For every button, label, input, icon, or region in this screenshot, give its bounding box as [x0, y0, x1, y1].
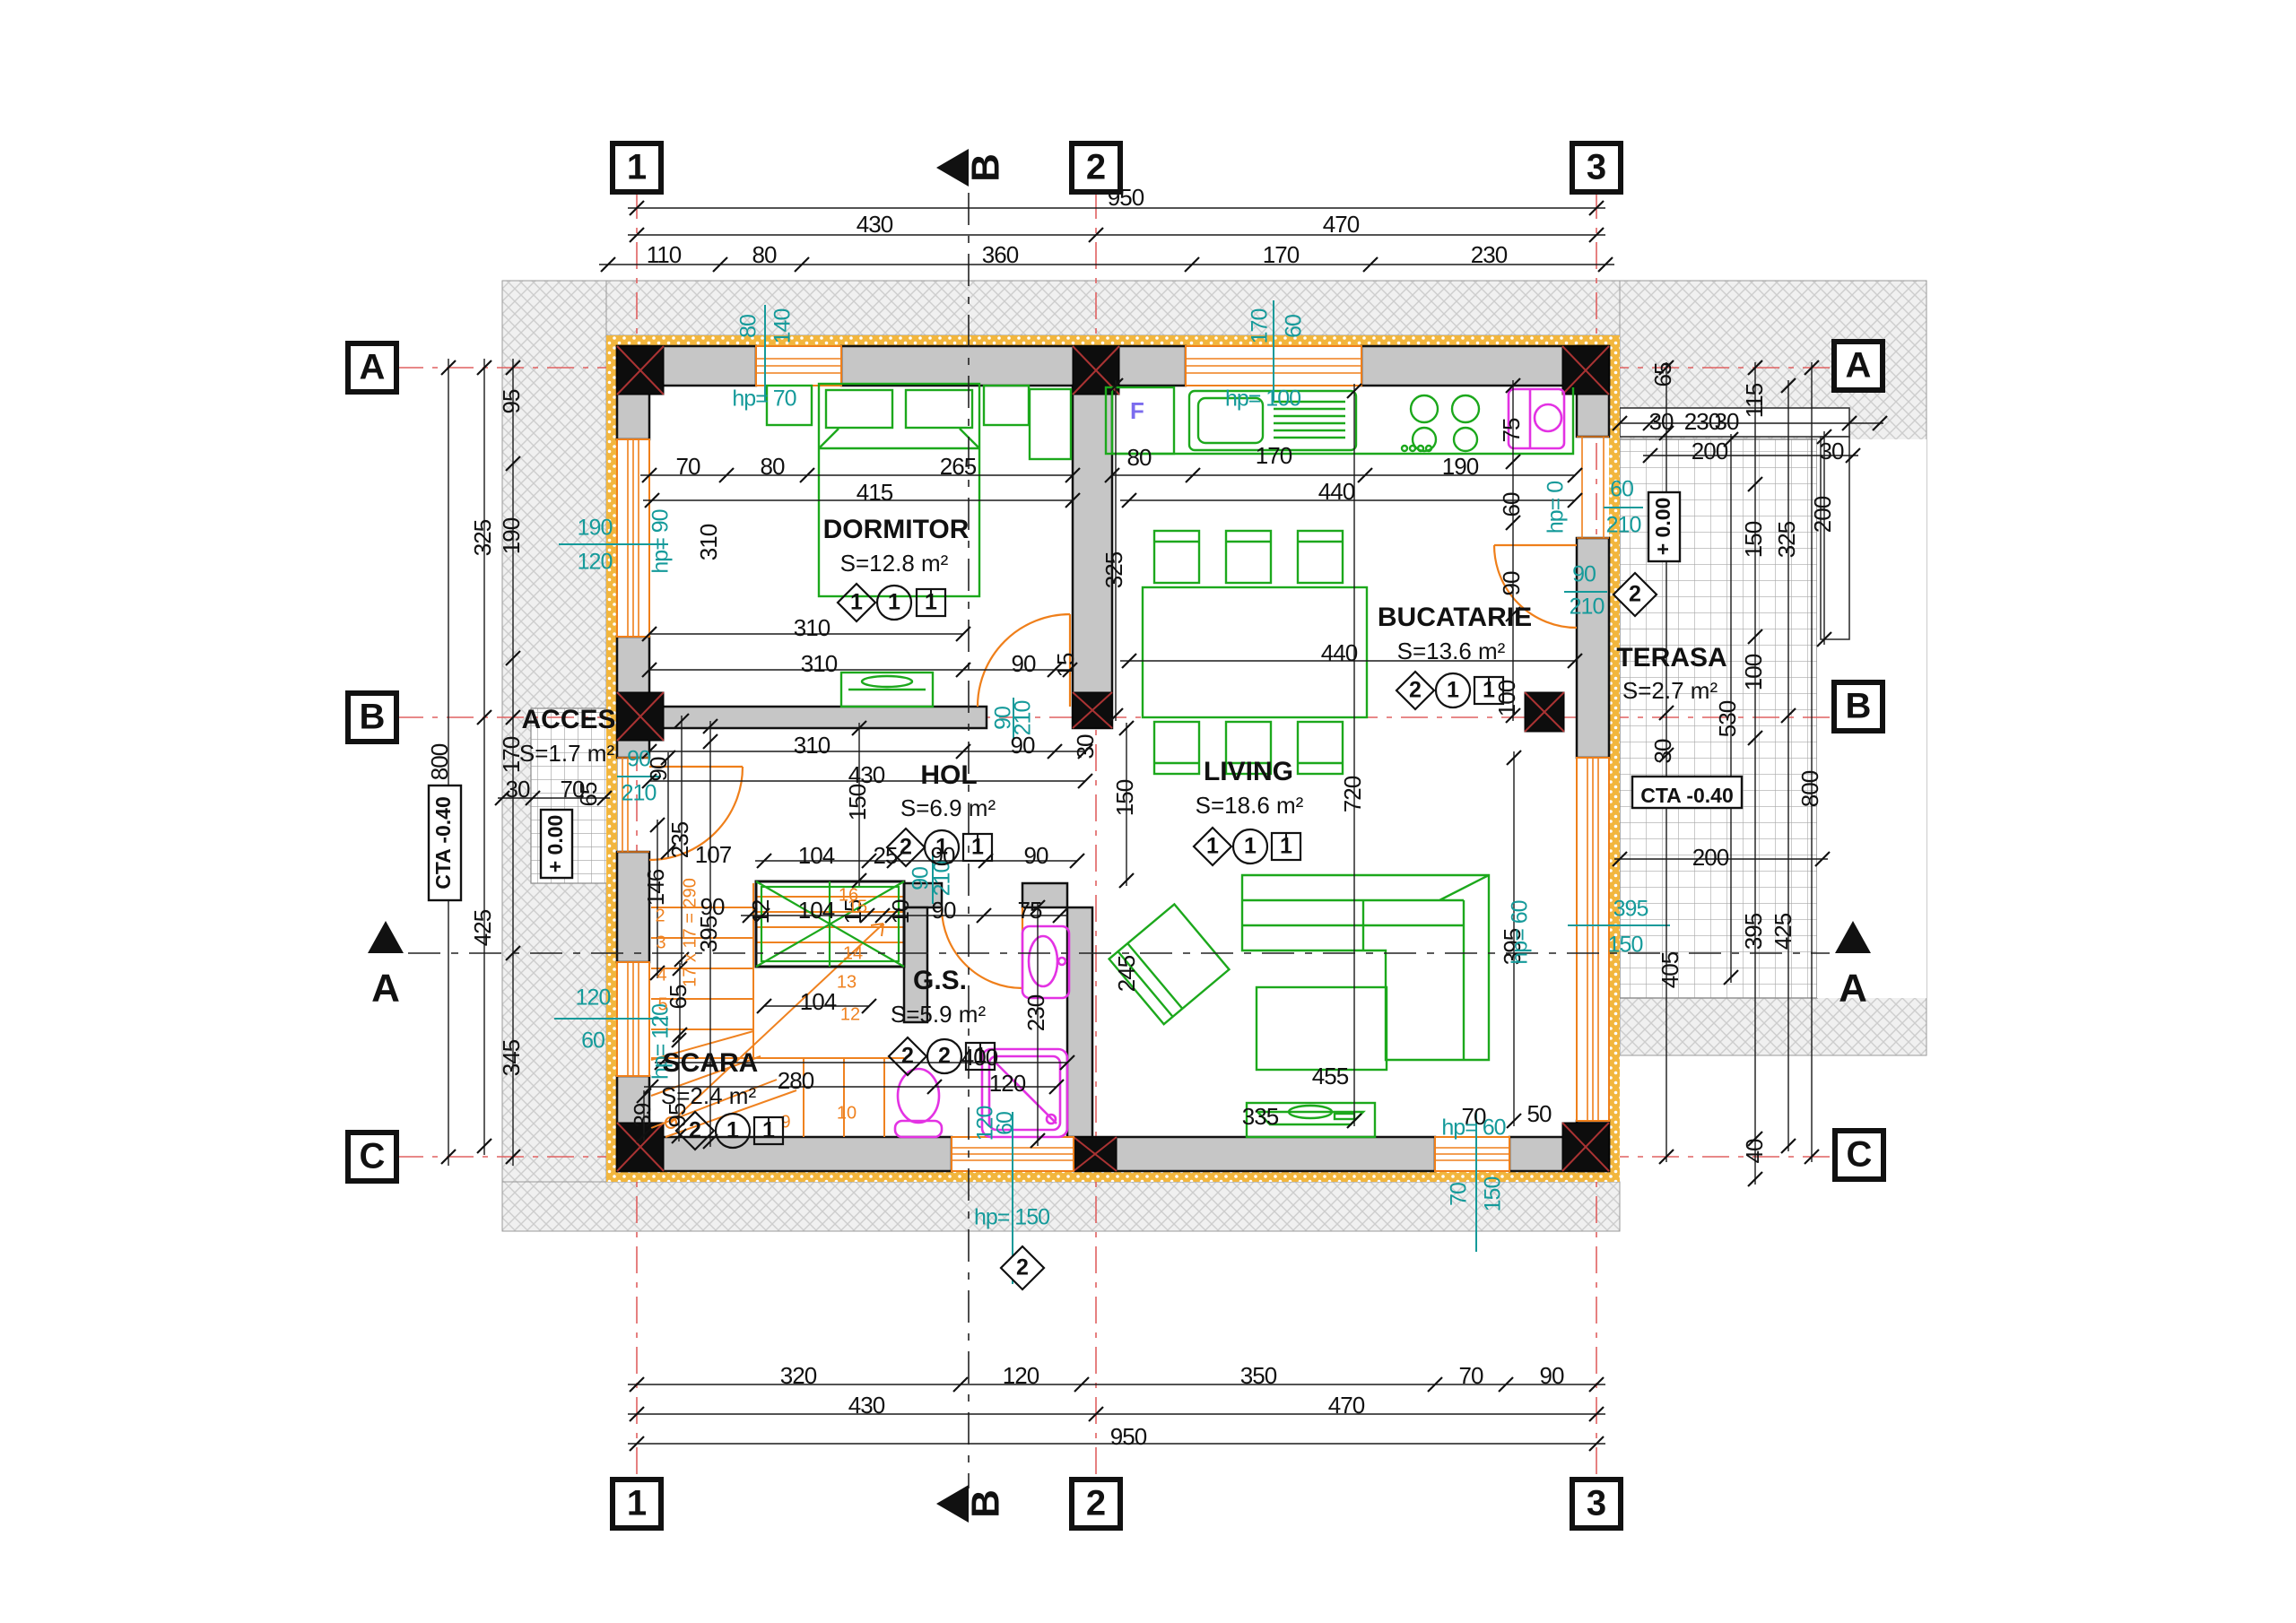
finish-symbol-value: 2 [900, 835, 912, 860]
dim-label: 720 [1339, 776, 1366, 812]
dim-label: 415 [857, 479, 893, 506]
section-b-label: B [964, 153, 1008, 182]
dim-label: 280 [778, 1067, 814, 1094]
stair-label: 5 [657, 994, 667, 1014]
dim-label: 30 [1649, 739, 1676, 763]
section-a-arrow-icon [368, 921, 404, 953]
room-area: S=5.9 m² [891, 1001, 987, 1028]
window-dormitor-top [756, 346, 841, 386]
section-b-label: B [964, 1489, 1008, 1518]
room-area: S=13.6 m² [1397, 638, 1506, 664]
sofa [1242, 875, 1489, 1060]
dim-label: 200 [1809, 496, 1836, 533]
dim-label: 440 [1321, 639, 1358, 666]
finish-symbol-value: 1 [888, 590, 900, 615]
dim-label: 104 [800, 988, 837, 1015]
grid-bubble-label: 2 [1086, 148, 1106, 187]
room-name: ACCES [521, 705, 615, 734]
finish-symbol-value: 1 [726, 1118, 739, 1143]
dim-label: 70 [1459, 1362, 1483, 1389]
finish-symbol-value: 1 [925, 590, 937, 615]
dim-label: 265 [940, 453, 977, 480]
dim-label: 170 [1263, 241, 1300, 268]
room-area: S=2.7 m² [1622, 677, 1718, 704]
level-marker-label: CTA -0.40 [431, 796, 455, 890]
dim-label: 30 [1649, 408, 1674, 435]
section-2-label: 2 [1016, 1255, 1029, 1280]
room-name: TERASA [1616, 643, 1726, 673]
dim-label: 146 [642, 869, 669, 906]
grid-bubble-label: A [360, 348, 386, 387]
floor-plan-drawing: 9504304701108036017023032012035070904304… [0, 0, 2296, 1623]
dim-label: 320 [780, 1362, 817, 1389]
window-size-label: 210 [1011, 701, 1036, 736]
dim-label: 455 [1312, 1063, 1349, 1089]
window-size-label: 120 [576, 985, 611, 1011]
dim-label: 80 [1127, 444, 1152, 471]
window-living-bottom [1435, 1137, 1509, 1171]
nightstand-right [984, 386, 1029, 425]
window-size-label: hp= 70 [732, 386, 796, 412]
window-size-label: 90 [1572, 562, 1596, 587]
floor-plan-canvas: 9504304701108036017023032012035070904304… [0, 0, 2296, 1623]
finish-symbol-value: 1 [974, 1044, 987, 1069]
dim-label: 350 [1240, 1362, 1277, 1389]
dim-label: 70 [676, 453, 700, 480]
dim-label: 200 [1692, 438, 1728, 464]
room-name: HOL [920, 760, 977, 790]
dim-label: 30 [506, 776, 530, 803]
dim-label: 470 [1328, 1392, 1365, 1419]
window-size-label: 70 [1447, 1183, 1472, 1206]
window-living-right [1577, 758, 1609, 1121]
gs-toilet [895, 1069, 942, 1137]
window-size-label: 80 [736, 315, 761, 338]
dim-label: 245 [1113, 955, 1140, 992]
room-area: S=2.4 m² [661, 1082, 757, 1109]
stair-label: 2 [655, 906, 665, 925]
room-area: S=18.6 m² [1196, 792, 1304, 819]
dim-label: 30 [1820, 438, 1844, 464]
dim-label: 470 [1323, 211, 1360, 238]
dim-label: 440 [1318, 478, 1355, 505]
window-size-label: 120 [578, 550, 613, 575]
finish-symbol-value: 1 [1483, 678, 1495, 703]
stair-label: 10 [837, 1103, 857, 1123]
dim-label: 90 [1540, 1362, 1564, 1389]
window-size-label: 395 [1613, 897, 1648, 922]
room-area: S=6.9 m² [900, 794, 996, 821]
finish-symbol-value: 1 [1244, 834, 1257, 859]
finish-symbol-value: 2 [689, 1118, 701, 1143]
dim-label: 170 [1256, 442, 1292, 469]
dim-label: 75 [1498, 418, 1525, 442]
dim-label: 230 [1022, 994, 1049, 1031]
level-marker-label: CTA -0.40 [1640, 784, 1734, 807]
dim-label: 80 [761, 453, 785, 480]
stair-label: 3 [656, 933, 665, 952]
window-dormitor-left [617, 439, 649, 637]
dim-label: 65 [575, 782, 602, 806]
grid-bubble-label: 1 [627, 1484, 647, 1523]
dim-label: 800 [426, 743, 453, 780]
dim-label: 190 [498, 517, 525, 554]
dim-label: 90 [1498, 571, 1525, 595]
dim-label: 530 [1714, 700, 1741, 737]
grid-bubble-label: 2 [1086, 1484, 1106, 1523]
finish-symbol-value: 1 [971, 835, 984, 860]
dim-label: 430 [848, 1392, 885, 1419]
level-marker-label: + 0.00 [544, 815, 567, 873]
grid-bubble-label: B [360, 698, 386, 737]
window-size-label: 150 [1481, 1177, 1506, 1212]
dresser [841, 673, 933, 707]
section-2-label: 2 [1629, 582, 1641, 607]
dim-label: 120 [1003, 1362, 1039, 1389]
window-size-label: hp= 0 [1544, 482, 1569, 534]
dim-label: 325 [1100, 551, 1127, 588]
dim-label: 190 [1442, 453, 1479, 480]
finish-symbol-value: 2 [901, 1044, 914, 1069]
room-name: SCARA [663, 1048, 759, 1078]
door-opening-terasa [1577, 437, 1609, 538]
dim-label: 800 [1796, 770, 1823, 807]
dim-label: 310 [794, 732, 831, 759]
stair-label: 13 [837, 972, 857, 992]
section-a-label: A [371, 967, 400, 1011]
stair-label: 4 [657, 965, 666, 985]
dim-label: 104 [798, 897, 835, 924]
dim-label: 360 [982, 241, 1019, 268]
dim-label: 430 [848, 761, 885, 788]
dim-label: 90 [1012, 650, 1036, 677]
window-size-label: hp= 60 [1441, 1115, 1505, 1141]
grid-bubble-label: C [360, 1137, 386, 1176]
section-a-label: A [1839, 967, 1867, 1011]
finish-symbol-value: 1 [935, 835, 948, 860]
dim-label: 325 [1773, 521, 1800, 558]
finish-symbol-value: 1 [850, 590, 863, 615]
window-size-label: 60 [1282, 315, 1307, 338]
grid-bubble-label: C [1847, 1135, 1873, 1175]
window-size-label: 190 [578, 516, 613, 541]
window-size-label: 210 [622, 781, 657, 806]
finish-symbol-value: 2 [938, 1044, 951, 1069]
finish-symbol-value: 1 [1280, 834, 1292, 859]
window-size-label: 90 [627, 747, 650, 772]
dim-label: 30 [1715, 408, 1739, 435]
dim-label: 65 [1649, 362, 1676, 386]
level-marker-label: + 0.00 [1651, 498, 1674, 556]
dim-label: 50 [1527, 1100, 1552, 1127]
coffee-table [1257, 987, 1387, 1070]
dim-label: 104 [798, 842, 835, 869]
window-size-label: hp= 150 [974, 1205, 1049, 1230]
dim-label: 150 [1111, 779, 1138, 816]
gs-sink [1022, 926, 1069, 998]
window-size-label: 60 [581, 1028, 604, 1054]
dim-label: 60 [1498, 492, 1525, 516]
dim-label: 75 [1018, 897, 1042, 924]
stair-label: 14 [843, 943, 863, 963]
stair-label: 16 [839, 885, 858, 905]
room-name: BUCATARIE [1378, 603, 1532, 632]
dim-label: 115 [1741, 383, 1768, 418]
finish-symbol-value: 1 [1447, 678, 1459, 703]
dim-label: 150 [1740, 521, 1767, 558]
finish-symbol-value: 2 [1409, 678, 1422, 703]
dim-label: 15 [1052, 653, 1079, 677]
dim-label: 100 [1740, 654, 1767, 690]
grid-bubble-label: A [1846, 346, 1872, 386]
window-size-label: hp= 100 [1225, 386, 1300, 412]
dim-label: 230 [1471, 241, 1508, 268]
room-area: S=1.7 m² [519, 740, 615, 767]
window-size-label: hp= 60 [1508, 900, 1533, 964]
room-name: DORMITOR [823, 515, 970, 544]
window-size-label: 210 [1570, 595, 1605, 620]
dim-label: 310 [794, 614, 831, 641]
room-name: G.S. [913, 966, 967, 995]
window-size-label: 170 [1248, 309, 1273, 344]
dim-label: 100 [1493, 680, 1520, 716]
dim-label: 430 [857, 211, 893, 238]
grid-bubble-label: 3 [1587, 1484, 1606, 1523]
dim-label: 10 [887, 899, 914, 924]
finish-symbol-value: 1 [762, 1118, 775, 1143]
dim-label: 30 [1072, 734, 1099, 759]
room-area: S=12.8 m² [840, 550, 949, 577]
window-size-label: 60 [1610, 477, 1633, 502]
grid-bubble-label: 1 [627, 148, 647, 187]
dim-label: 425 [469, 909, 496, 946]
dim-label: 345 [498, 1039, 525, 1076]
grid-bubble-label: B [1846, 687, 1872, 726]
dim-label: 310 [695, 524, 722, 560]
dim-label: 95 [498, 389, 525, 413]
dim-label: 425 [1770, 913, 1796, 950]
dim-label: 90 [932, 897, 956, 924]
dim-label: 950 [1110, 1423, 1147, 1450]
grid-bubble-label: 3 [1587, 148, 1606, 187]
wardrobe [1030, 389, 1071, 459]
stair-label: 17 x 17 = 290 [680, 878, 700, 987]
dim-label: 40 [1741, 1139, 1768, 1163]
window-size-label: 60 [993, 1112, 1018, 1135]
dim-label: 335 [1242, 1103, 1279, 1130]
dim-label: 120 [989, 1070, 1026, 1097]
window-size-label: 210 [1606, 513, 1641, 538]
room-name: LIVING [1204, 757, 1293, 786]
dim-label: 80 [752, 241, 777, 268]
dim-label: 405 [1657, 951, 1683, 988]
dim-label: 395 [1740, 913, 1767, 950]
dim-label: 107 [695, 841, 732, 868]
finish-symbol-value: 1 [1206, 834, 1219, 859]
window-size-label: hp= 90 [648, 509, 674, 573]
stair-label: 12 [840, 1004, 860, 1024]
dim-label: 39 [629, 1103, 656, 1127]
window-size-label: 140 [770, 309, 796, 344]
dim-label: 325 [469, 519, 496, 556]
window-size-label: 210 [930, 862, 955, 897]
appliance-label: F [1130, 397, 1144, 424]
dim-label: 90 [700, 893, 725, 920]
dim-label: 90 [1024, 842, 1048, 869]
dim-label: 235 [666, 821, 693, 858]
dim-label: 200 [1692, 844, 1729, 871]
dim-label: 12 [747, 899, 774, 924]
window-size-label: 150 [1608, 933, 1643, 958]
dim-label: 310 [801, 650, 838, 677]
dim-label: 150 [844, 784, 871, 820]
dim-label: 110 [647, 241, 682, 268]
